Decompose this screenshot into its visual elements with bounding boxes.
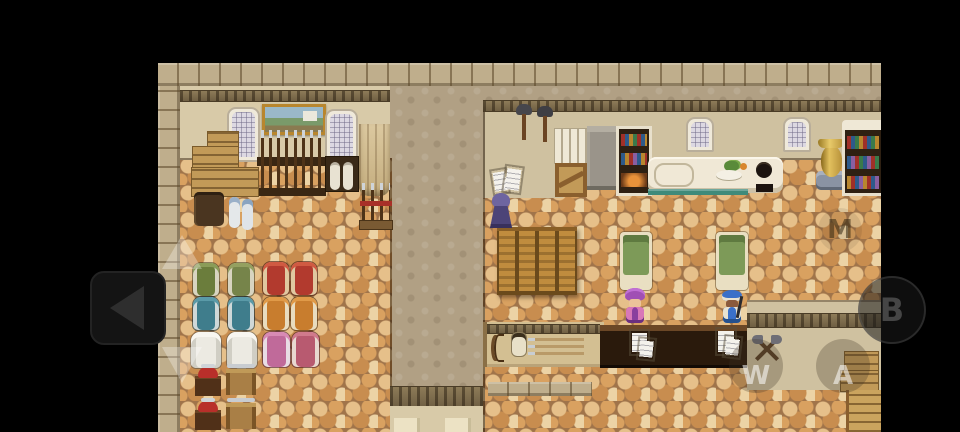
armor-display-red [263, 262, 289, 295]
border-wall-top [158, 63, 881, 86]
small-spear-rack [360, 183, 392, 229]
inner-wall-band [488, 382, 592, 396]
wall-hammer [537, 106, 553, 144]
arrow [528, 338, 584, 341]
display-bench-blade [226, 396, 256, 432]
vase-body [821, 146, 842, 177]
dress-display-rose [292, 332, 319, 367]
bed [716, 232, 748, 290]
bench-frame [226, 403, 256, 429]
rack-base [292, 188, 326, 196]
quiver [512, 333, 526, 356]
armor-display-orange [263, 297, 289, 330]
bed-mattress [719, 235, 745, 275]
bed [620, 232, 652, 290]
crate-brace [557, 171, 584, 189]
button-m[interactable]: M [818, 208, 862, 252]
button-b-label: B [880, 291, 904, 329]
silver-band [201, 364, 215, 368]
towel-rolls [229, 197, 254, 230]
lattice [330, 114, 353, 157]
slat-cabinet [555, 129, 587, 163]
kitchen-counter [648, 157, 783, 193]
books-row [847, 156, 879, 169]
vase-rim [818, 139, 844, 148]
red-binding [360, 201, 392, 206]
left-arrow-icon [110, 286, 144, 330]
button-w-label: W [742, 361, 771, 391]
pillar [445, 418, 471, 432]
phone-screen: M B W A [0, 0, 960, 432]
blade [227, 398, 255, 402]
shelf-fire-glow [621, 173, 647, 187]
bookshelf-top [842, 120, 881, 130]
silver-band [201, 398, 215, 402]
pillar [394, 418, 420, 432]
wood-crate [555, 163, 587, 197]
cloth-roll [343, 162, 353, 190]
wall-hammer [516, 104, 532, 142]
kitchen-shelf [619, 129, 649, 193]
stove-hatch [756, 184, 773, 192]
folding-screen [497, 227, 577, 295]
shop-alcove-right [325, 109, 358, 162]
lattice [788, 122, 806, 147]
red-item [198, 401, 218, 412]
npc-blue-cap-clerk[interactable] [720, 290, 744, 324]
painting-castle [303, 111, 317, 121]
display-table-red-item [192, 364, 224, 398]
blade [227, 364, 255, 368]
weapon-rack-spears [294, 130, 324, 196]
food-platter [716, 170, 742, 180]
robe [490, 206, 512, 228]
armor-display-orange [291, 297, 317, 330]
npc-hooded-figure[interactable] [489, 193, 513, 229]
shelf-items [621, 134, 647, 146]
lattice [691, 122, 709, 147]
rack-base [360, 221, 392, 229]
path-south-wall-trim [390, 386, 483, 408]
wooden-stairs [846, 390, 881, 432]
service-counter [600, 325, 747, 368]
shop-wall-trim [180, 90, 390, 102]
armor-display-red [291, 262, 317, 295]
display-table-red-item [192, 398, 224, 432]
red-item [198, 367, 218, 378]
armor-display-green [228, 263, 254, 296]
table [195, 410, 221, 430]
stove-burner [756, 162, 772, 178]
bookshelf [845, 128, 881, 193]
towel [229, 197, 240, 228]
display-bench-blade [226, 362, 256, 398]
archery-table [483, 322, 604, 367]
arrow [528, 352, 584, 355]
arrow [528, 345, 584, 348]
armor-display-teal [228, 297, 254, 330]
dpad-left-button[interactable] [90, 271, 166, 345]
stone-chimney [587, 126, 618, 190]
golden-vase [814, 139, 848, 191]
bench-frame [226, 369, 256, 395]
bows [494, 334, 504, 362]
towel [242, 199, 253, 230]
barrel [194, 192, 224, 226]
cloth-roll [330, 162, 340, 190]
hood [492, 193, 510, 208]
spear-shafts [362, 190, 390, 223]
counter-runner [648, 189, 748, 195]
rack-base [259, 188, 293, 196]
button-a-label: A [833, 361, 853, 391]
shelf-items [621, 153, 647, 165]
axe-head [771, 335, 782, 344]
bed-mattress [623, 235, 649, 275]
food-orange [740, 163, 747, 170]
inn-window [686, 117, 714, 152]
wall-paper-note [502, 165, 524, 194]
books-row [847, 176, 879, 189]
button-a[interactable]: A [816, 339, 870, 393]
armor-display-teal [193, 297, 219, 330]
hammer-handle [543, 116, 547, 142]
button-w[interactable]: W [729, 339, 783, 393]
table-trim [487, 324, 600, 334]
counter-paper [637, 337, 656, 361]
inn-window [783, 117, 811, 152]
button-b[interactable]: B [858, 276, 926, 344]
outfit [626, 307, 644, 323]
counter-sink [654, 163, 694, 187]
table [195, 376, 221, 396]
npc-purple-turban-merchant[interactable] [623, 288, 647, 324]
weapon-rack-spears [261, 130, 291, 196]
books-row [847, 136, 879, 149]
hammer-handle [522, 114, 526, 140]
button-m-label: M [827, 215, 853, 245]
dress-display-pink [263, 332, 290, 367]
shelf-cloth-rolls [326, 157, 358, 191]
path-south-wall [390, 406, 483, 432]
spear-shafts [261, 138, 291, 190]
spear-shafts [294, 138, 324, 190]
